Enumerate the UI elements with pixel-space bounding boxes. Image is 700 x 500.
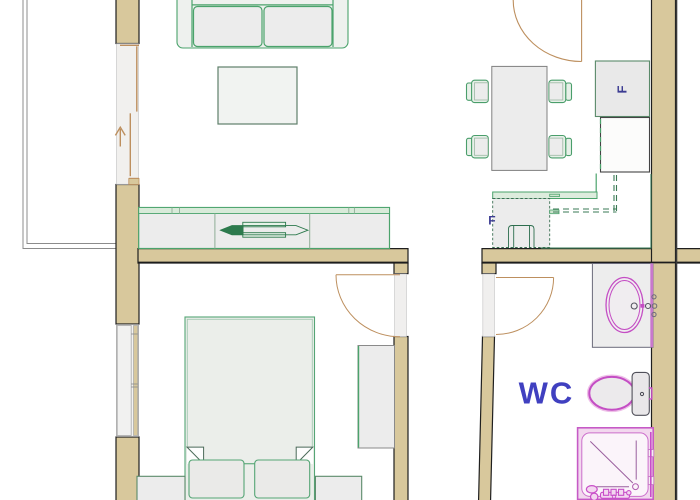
- svg-text:WC: WC: [519, 376, 575, 411]
- svg-text:F: F: [614, 85, 629, 93]
- svg-text:F: F: [488, 214, 495, 228]
